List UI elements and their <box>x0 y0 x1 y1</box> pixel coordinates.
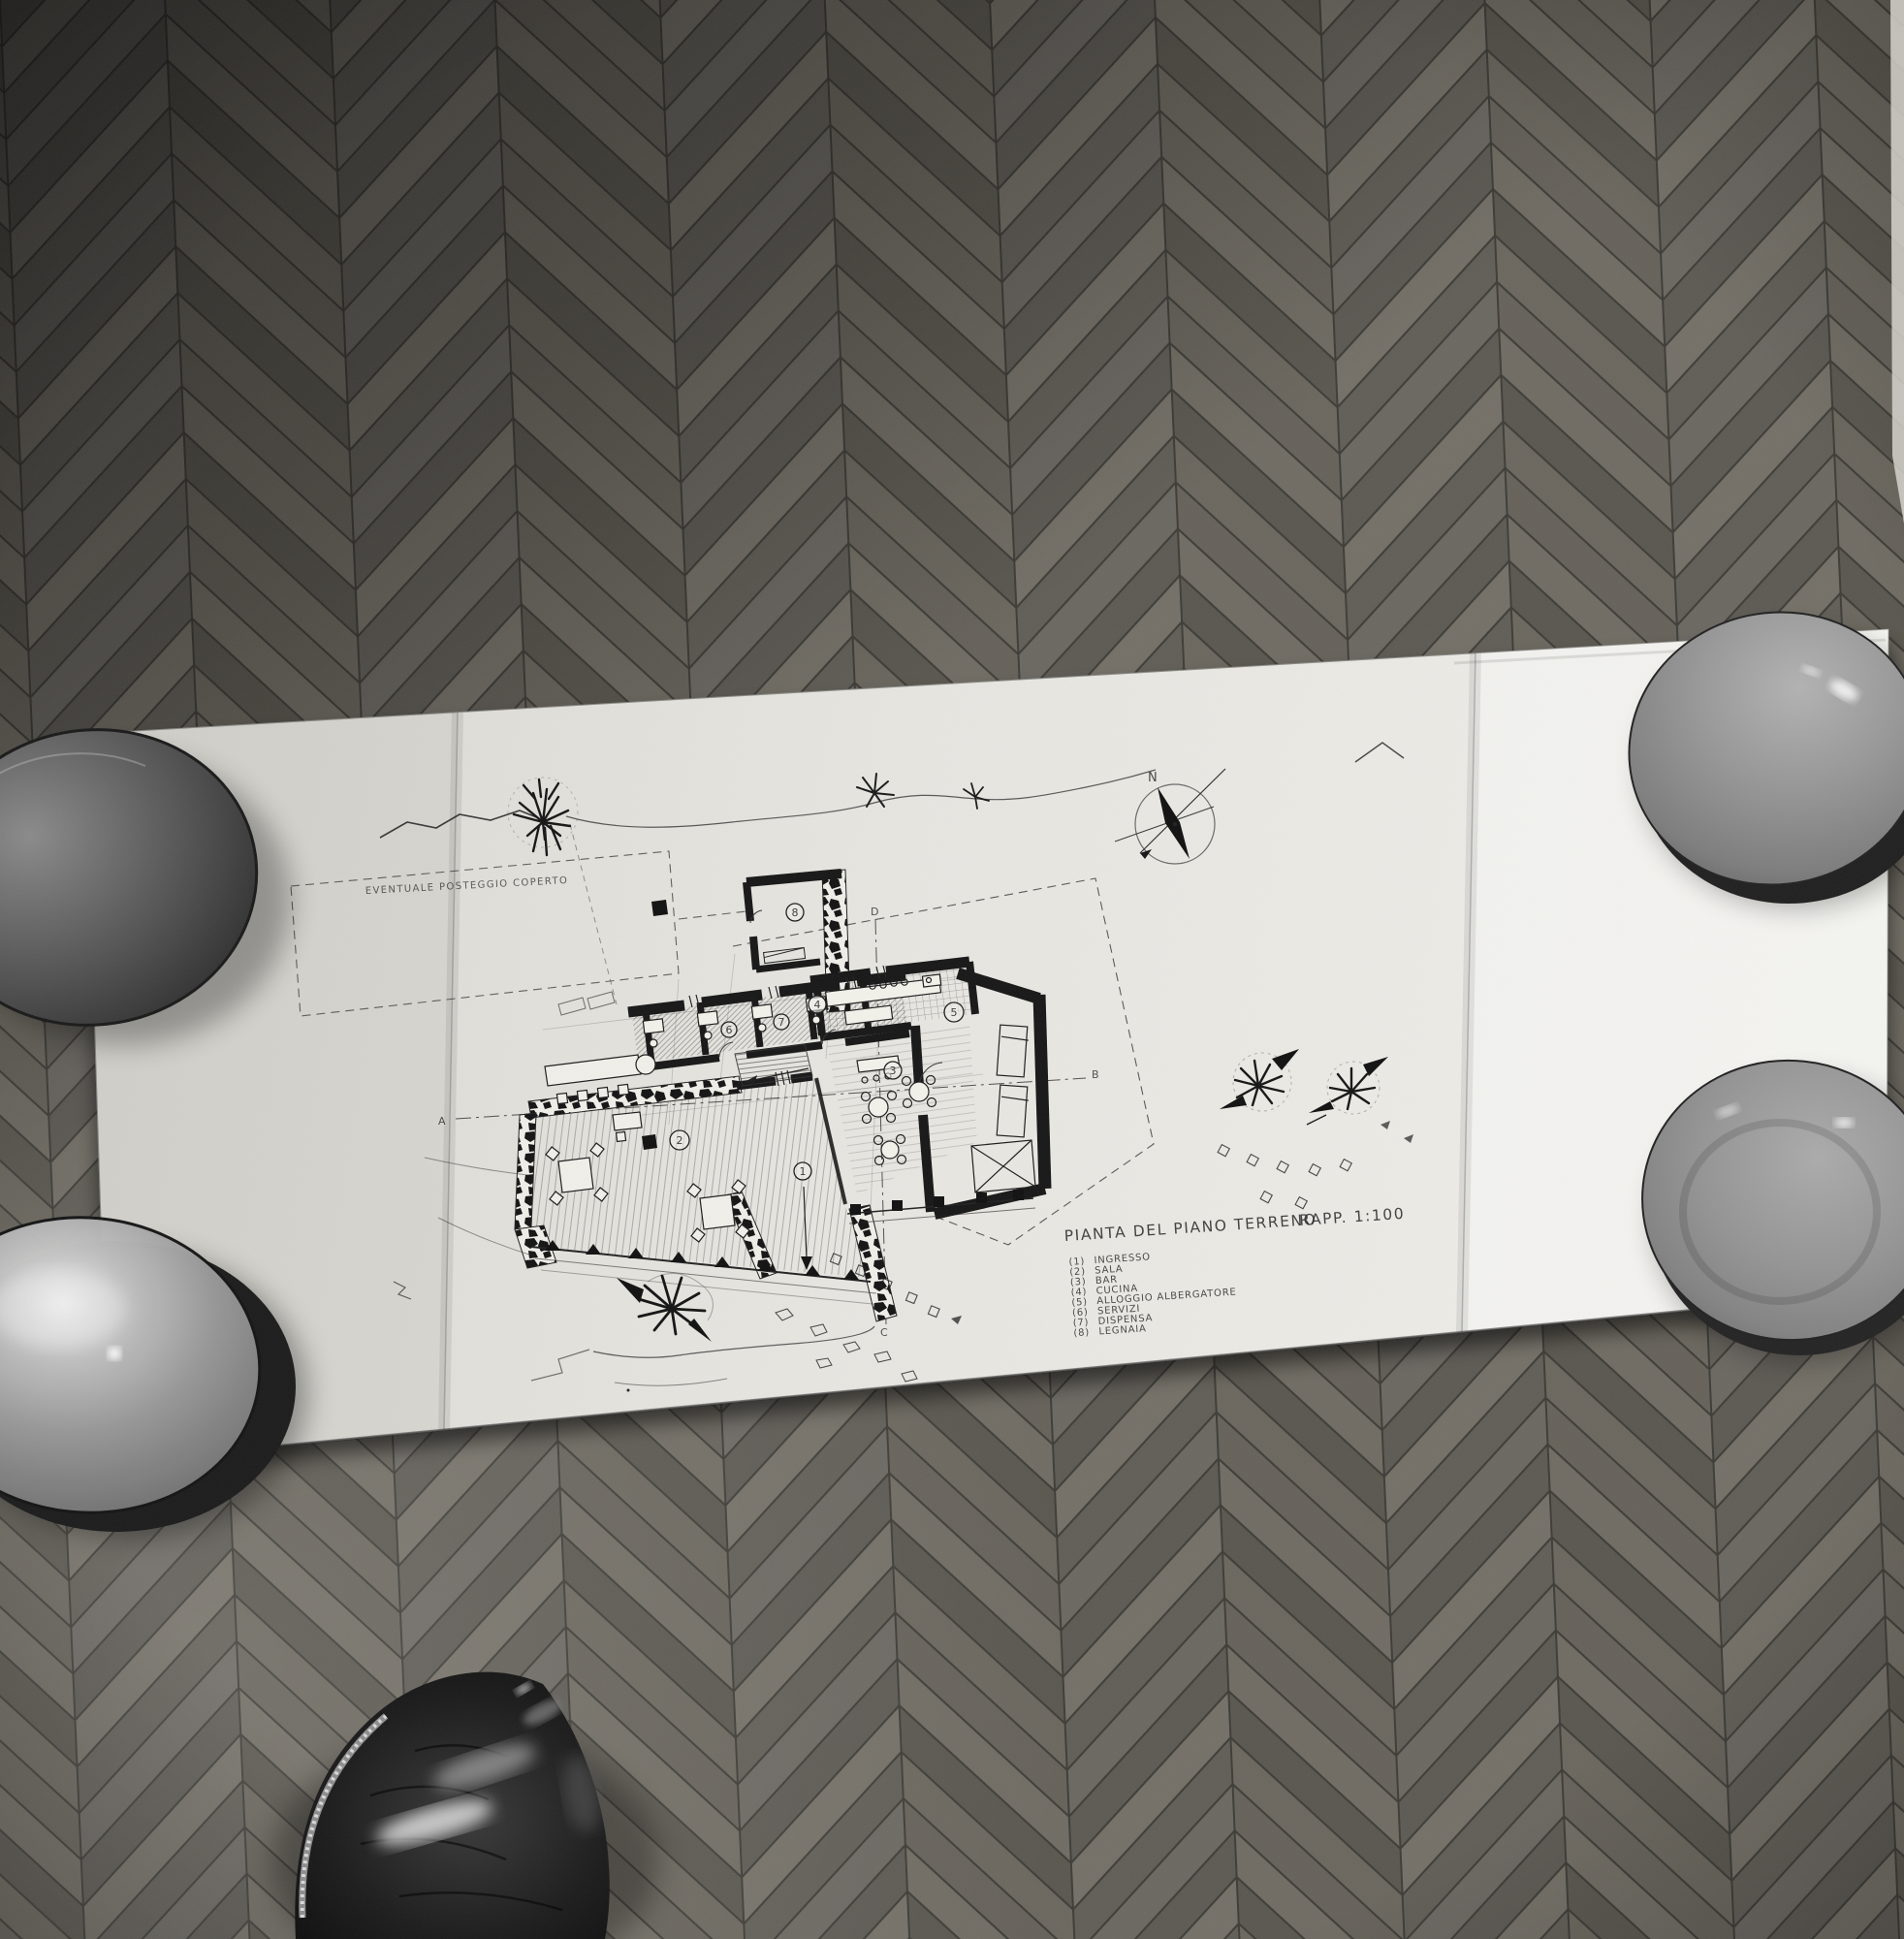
photograph-floor-plan-on-parquet: N EVENTUALE POSTEGGIO COPERTO A B C D <box>0 0 1904 1939</box>
photo-canvas: N EVENTUALE POSTEGGIO COPERTO A B C D <box>0 0 1904 1939</box>
film-grain-overlay <box>0 0 1904 1939</box>
